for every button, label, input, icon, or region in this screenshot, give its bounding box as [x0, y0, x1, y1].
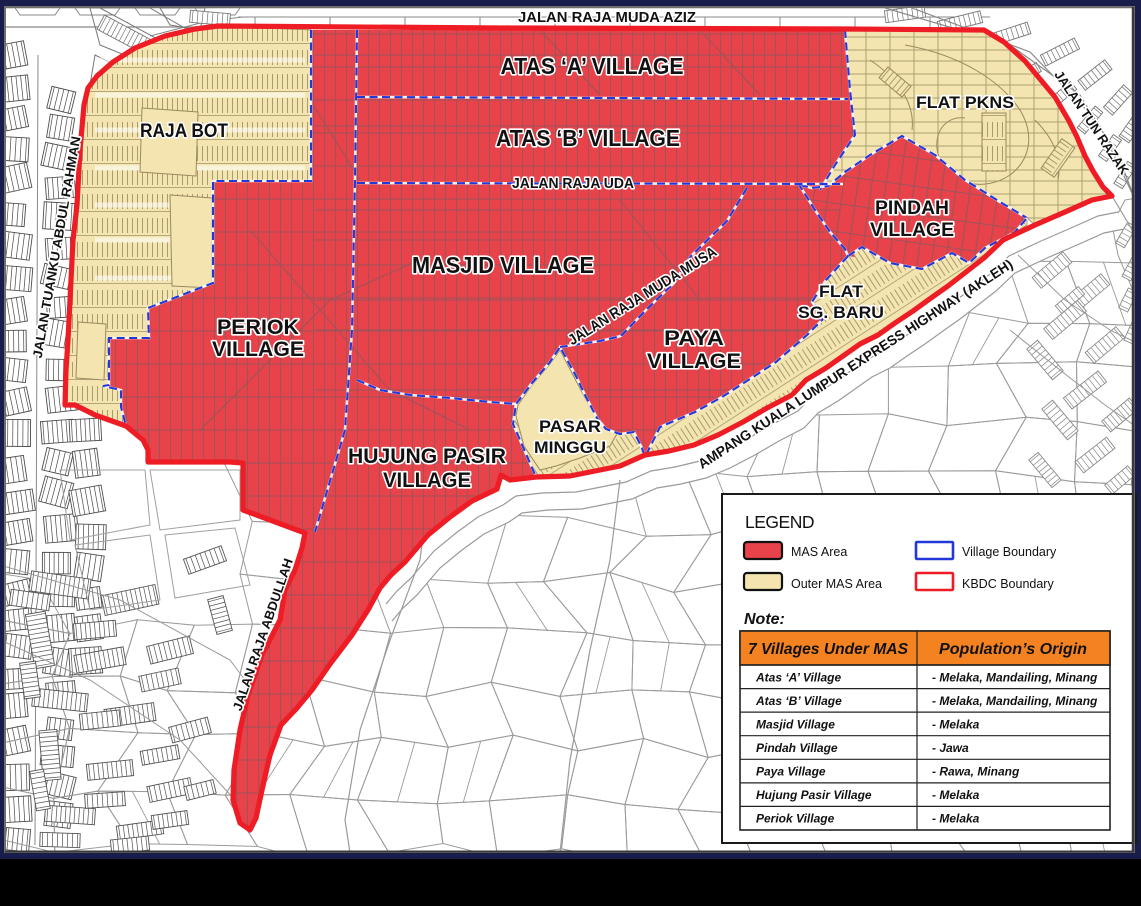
svg-text:Pindah Village: Pindah Village [756, 741, 838, 755]
svg-text:Population’s Origin: Population’s Origin [939, 641, 1087, 658]
svg-text:Paya Village: Paya Village [756, 765, 826, 779]
svg-text:- Melaka, Mandailing, Minang: - Melaka, Mandailing, Minang [932, 670, 1098, 684]
svg-text:Atas ‘B’ Village: Atas ‘B’ Village [755, 694, 842, 708]
svg-text:PINDAH: PINDAH [875, 198, 949, 219]
svg-text:ATAS ‘A’ VILLAGE: ATAS ‘A’ VILLAGE [501, 53, 684, 79]
svg-text:LEGEND: LEGEND [745, 512, 814, 532]
svg-text:- Melaka: - Melaka [932, 788, 980, 802]
svg-text:VILLAGE: VILLAGE [647, 350, 741, 373]
svg-text:Periok Village: Periok Village [756, 812, 835, 826]
svg-text:SG. BARU: SG. BARU [798, 303, 884, 322]
svg-text:Masjid Village: Masjid Village [756, 717, 835, 731]
svg-text:Hujung Pasir Village: Hujung Pasir Village [756, 788, 872, 802]
svg-text:FLAT: FLAT [819, 282, 864, 301]
svg-text:- Melaka: - Melaka [932, 717, 980, 731]
svg-text:PASAR: PASAR [539, 417, 601, 436]
svg-text:- Melaka: - Melaka [932, 812, 980, 826]
svg-text:JALAN RAJA UDA: JALAN RAJA UDA [512, 175, 634, 192]
svg-text:JALAN RAJA MUDA AZIZ: JALAN RAJA MUDA AZIZ [518, 9, 696, 26]
svg-text:PAYA: PAYA [664, 327, 724, 350]
svg-text:FLAT PKNS: FLAT PKNS [916, 93, 1014, 112]
svg-text:- Rawa, Minang: - Rawa, Minang [932, 765, 1020, 779]
svg-text:- Jawa: - Jawa [932, 741, 969, 755]
svg-text:MAS Area: MAS Area [791, 545, 847, 559]
svg-text:PERIOK: PERIOK [217, 316, 299, 339]
svg-text:KBDC Boundary: KBDC Boundary [962, 577, 1054, 591]
svg-text:ATAS ‘B’ VILLAGE: ATAS ‘B’ VILLAGE [496, 125, 680, 151]
svg-text:RAJA BOT: RAJA BOT [140, 121, 228, 142]
svg-text:Atas ‘A’ Village: Atas ‘A’ Village [755, 670, 841, 684]
svg-text:7 Villages Under MAS: 7 Villages Under MAS [748, 641, 908, 658]
svg-text:Village Boundary: Village Boundary [962, 545, 1057, 559]
svg-text:MINGGU: MINGGU [534, 438, 606, 457]
svg-text:HUJUNG PASIR: HUJUNG PASIR [348, 445, 506, 468]
svg-text:VILLAGE: VILLAGE [212, 338, 304, 361]
svg-text:MASJID VILLAGE: MASJID VILLAGE [412, 252, 594, 278]
svg-text:Outer MAS Area: Outer MAS Area [791, 577, 882, 591]
svg-text:VILLAGE: VILLAGE [870, 220, 954, 241]
svg-text:VILLAGE: VILLAGE [383, 469, 471, 492]
svg-text:Note:: Note: [744, 611, 785, 628]
svg-text:- Melaka, Mandailing, Minang: - Melaka, Mandailing, Minang [932, 694, 1098, 708]
